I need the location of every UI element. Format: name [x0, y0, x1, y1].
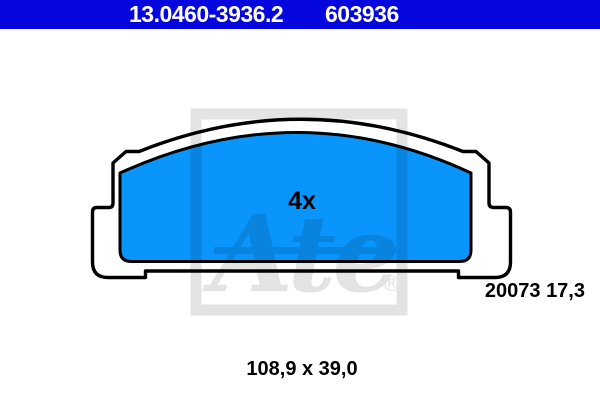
reference-number-text: 603936 — [325, 0, 399, 29]
part-number-text: 13.0460-3936.2 — [129, 0, 283, 29]
dimensions-label: 108,9 x 39,0 — [202, 358, 402, 381]
header-bar: 13.0460-3936.2 603936 — [0, 0, 600, 29]
wva-number-label: 20073 17,3 — [420, 280, 585, 303]
ate-brake-pad-datasheet: 13.0460-3936.2 603936 Ate ® 4x 20073 17,… — [0, 0, 600, 400]
registered-trademark-icon: ® — [381, 272, 402, 296]
quantity-label: 4x — [250, 187, 354, 216]
